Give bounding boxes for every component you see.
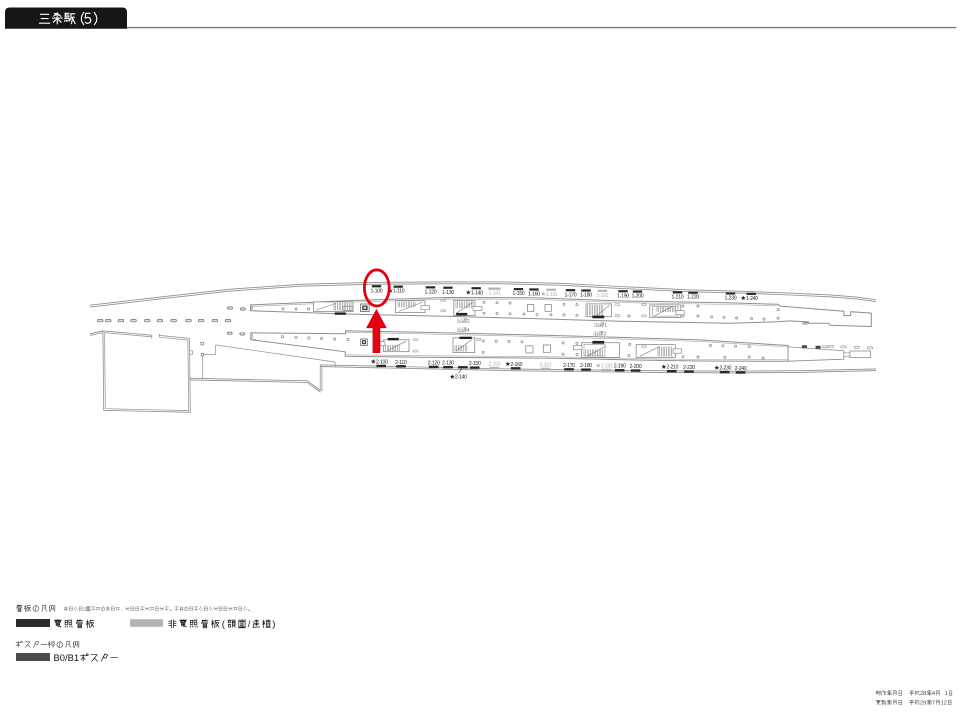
svg-text:1: 1 <box>945 691 948 697</box>
svg-text:2-130: 2-130 <box>442 361 454 367</box>
svg-text:/: / <box>248 619 251 629</box>
svg-text:1-130: 1-130 <box>442 290 454 296</box>
svg-text:B0/B1: B0/B1 <box>54 652 80 663</box>
svg-text:2-200: 2-200 <box>630 364 642 370</box>
svg-text:12: 12 <box>941 701 947 707</box>
svg-text:2-240: 2-240 <box>735 366 747 372</box>
svg-text:): ) <box>272 619 275 630</box>
svg-text:3: 3 <box>603 331 606 337</box>
svg-text:1-110: 1-110 <box>393 289 405 295</box>
svg-text:4: 4 <box>932 691 935 697</box>
svg-text:2-210: 2-210 <box>666 365 678 371</box>
svg-text:2-220: 2-220 <box>683 365 695 371</box>
svg-text:1-161: 1-161 <box>546 292 558 298</box>
svg-text:1-100: 1-100 <box>371 288 383 294</box>
svg-text:1-210: 1-210 <box>672 294 684 300</box>
svg-text:2-190: 2-190 <box>614 364 626 370</box>
svg-text:29: 29 <box>920 701 926 707</box>
svg-text:28: 28 <box>920 691 926 697</box>
svg-text:2: 2 <box>467 319 470 325</box>
svg-text:1-200: 1-200 <box>632 294 644 300</box>
svg-text:1-181: 1-181 <box>597 293 609 299</box>
svg-text:1-170: 1-170 <box>565 292 577 298</box>
svg-text:2-110: 2-110 <box>395 360 407 366</box>
svg-text:2-140: 2-140 <box>455 375 467 381</box>
svg-text:2-160: 2-160 <box>510 362 522 368</box>
svg-text:1-180: 1-180 <box>580 293 592 299</box>
svg-text:1-240: 1-240 <box>746 296 758 302</box>
svg-text:1: 1 <box>604 323 607 329</box>
svg-text:1-141: 1-141 <box>489 291 501 297</box>
svg-text:1-150: 1-150 <box>513 291 525 297</box>
svg-text:1-120: 1-120 <box>425 289 437 295</box>
svg-text:1-140: 1-140 <box>471 290 483 296</box>
svg-text:2-100: 2-100 <box>376 359 388 365</box>
svg-text:2-161: 2-161 <box>540 362 552 368</box>
svg-text:4: 4 <box>467 328 470 334</box>
svg-text:2-150: 2-150 <box>469 361 481 367</box>
svg-text:2-170: 2-170 <box>563 363 575 369</box>
svg-text:1-160: 1-160 <box>528 292 540 298</box>
svg-text:2-151: 2-151 <box>489 361 501 367</box>
svg-text:1-220: 1-220 <box>687 295 699 301</box>
svg-text:2-120: 2-120 <box>428 360 440 366</box>
svg-text:2: 2 <box>83 607 86 613</box>
svg-text:2-181: 2-181 <box>601 363 613 369</box>
svg-text:2-230: 2-230 <box>719 366 731 372</box>
svg-text:2-180: 2-180 <box>580 363 592 369</box>
svg-text:7: 7 <box>932 701 935 707</box>
svg-text:1-190: 1-190 <box>617 293 629 299</box>
svg-text:1-230: 1-230 <box>725 296 737 302</box>
svg-text:(: ( <box>222 619 226 630</box>
